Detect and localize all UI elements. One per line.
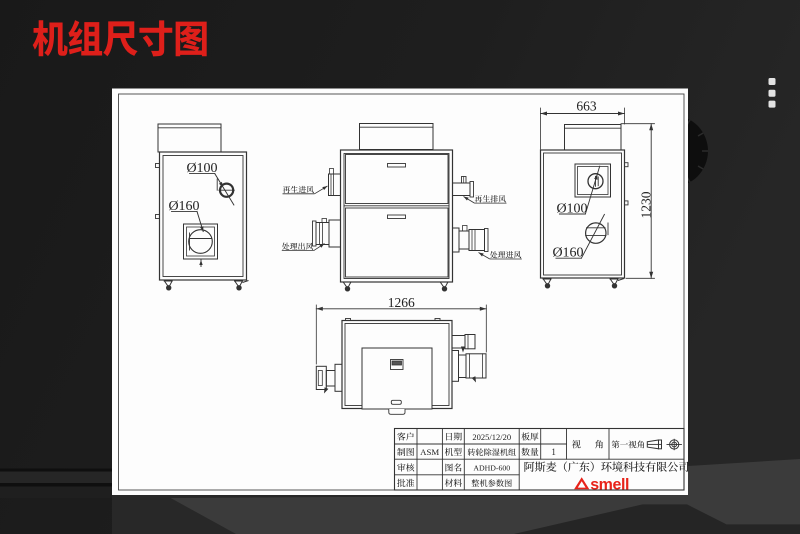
svg-text:1266: 1266	[388, 295, 415, 310]
svg-text:663: 663	[576, 99, 597, 114]
svg-text:ADHD-600: ADHD-600	[473, 464, 510, 473]
svg-text:2025/12/20: 2025/12/20	[472, 432, 511, 442]
svg-text:ASM: ASM	[420, 447, 439, 457]
svg-text:smell: smell	[590, 476, 629, 493]
svg-text:1: 1	[551, 447, 556, 457]
svg-text:1230: 1230	[638, 191, 653, 218]
